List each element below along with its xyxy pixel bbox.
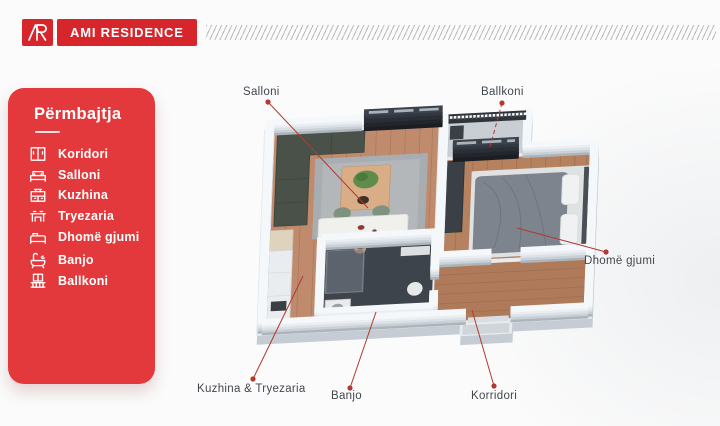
shower (326, 249, 365, 293)
callout-korridori: Korridori (471, 390, 517, 402)
kitchen-counter (266, 250, 292, 326)
callout-salloni: Salloni (243, 86, 280, 98)
kitchen-tall-unit (269, 230, 293, 252)
balcony-railing (449, 111, 527, 121)
callout-kuzhina-tryezaria: Kuzhina & Tryezaria (197, 383, 306, 395)
callout-ballkoni: Ballkoni (481, 86, 524, 98)
bathroom-sink (401, 246, 430, 256)
floorplan-render (0, 0, 720, 426)
callout-dhome-gjumi: Dhomë gjumi (584, 255, 655, 267)
balcony-furniture (450, 125, 464, 139)
slide: { "header": { "brand": "AMI RESIDENCE", … (0, 0, 720, 426)
pillow (561, 174, 580, 205)
callout-banjo: Banjo (331, 390, 362, 402)
kitchen-oven (271, 301, 287, 311)
